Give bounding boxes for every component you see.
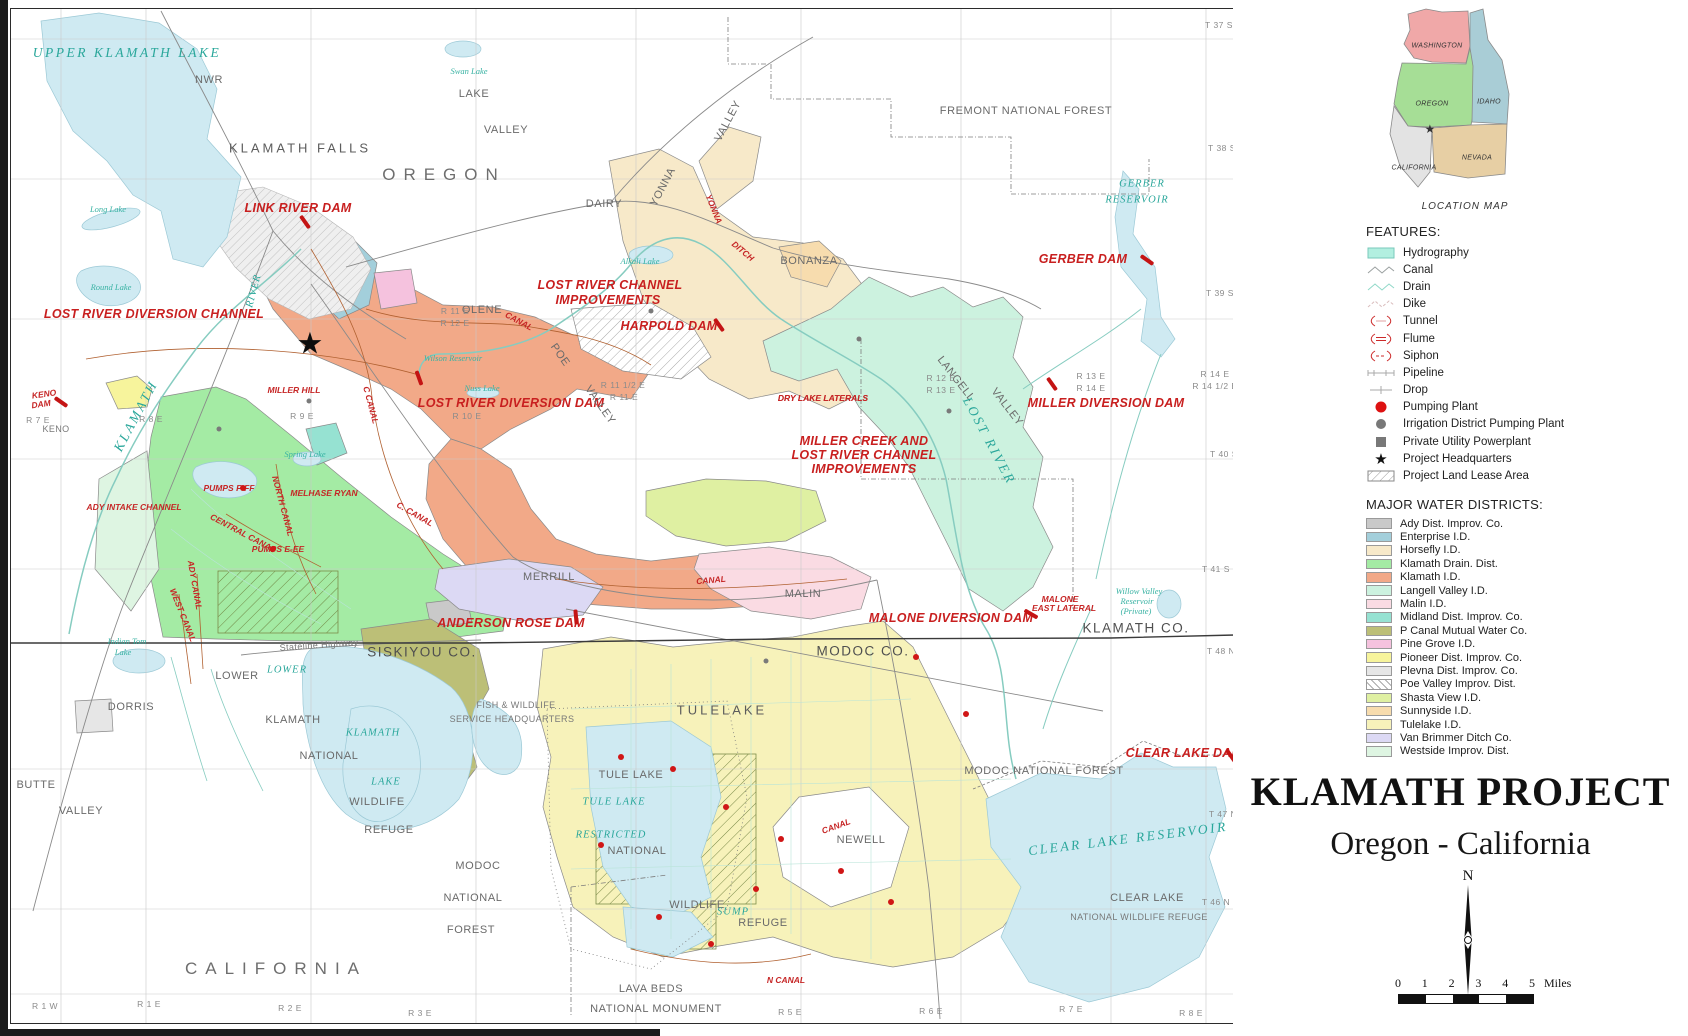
pumping-plant-dot <box>656 914 662 920</box>
map-label: Nuss Lake <box>464 383 499 393</box>
legend-feature-hydrography: Hydrography <box>1366 244 1676 261</box>
map-label: R 11 E <box>610 392 638 402</box>
map-label: NATIONAL MONUMENT <box>590 1003 722 1015</box>
scale-segment <box>1399 995 1426 1003</box>
district-swatch <box>1366 639 1392 650</box>
pumping-plant-dot <box>708 941 714 947</box>
legend-district-pine_grove: Pine Grove I.D. <box>1366 638 1676 651</box>
legend-feature-dike: Dike <box>1366 296 1676 313</box>
pumping-plant-dot <box>270 546 276 552</box>
districts-legend: MAJOR WATER DISTRICTS: Ady Dist. Improv.… <box>1366 497 1676 758</box>
district-pumping-plant-dot <box>857 337 862 342</box>
map-label: R 7 E <box>1059 1004 1083 1014</box>
legend-district-pioneer: Pioneer Dist. Improv. Co. <box>1366 651 1676 664</box>
location-map: WASHINGTONOREGONIDAHOCALIFORNIANEVADA★ <box>1380 6 1550 201</box>
scale-tick: 4 <box>1502 976 1508 991</box>
map-label: FREMONT NATIONAL FOREST <box>940 105 1113 117</box>
legend-district-klamath_drain: Klamath Drain. Dist. <box>1366 557 1676 570</box>
map-label: LOST RIVER CHANNEL <box>538 278 683 292</box>
pumping-plant-dot <box>753 886 759 892</box>
legend-feature-canal: Canal <box>1366 261 1676 278</box>
map-label: CALIFORNIA <box>185 959 367 979</box>
scale-tick: 0 <box>1395 976 1401 991</box>
pumping-plant-dot <box>913 654 919 660</box>
map-label: C. CANAL <box>395 500 435 529</box>
map-label: R 11 E <box>441 306 469 316</box>
pumping-plant-dot <box>778 836 784 842</box>
canal-icon <box>1366 263 1396 277</box>
map-label: REFUGE <box>364 824 413 836</box>
district-swatch <box>1366 626 1392 637</box>
map-label: DITCH <box>730 239 756 263</box>
map-label: MILLER CREEK AND <box>800 434 929 448</box>
map-label: EAST LATERAL <box>1032 603 1096 613</box>
north-label: N <box>1461 868 1475 885</box>
map-label: BUTTE <box>16 779 55 791</box>
map-label: T 41 S <box>1202 564 1230 574</box>
map-label: LINK RIVER DAM <box>245 201 352 215</box>
map-label: Lake <box>115 647 132 657</box>
pumping-plant-dot <box>963 711 969 717</box>
legend-district-westside: Westside Improv. Dist. <box>1366 745 1676 758</box>
map-label: RESERVOIR <box>1105 195 1168 206</box>
legend-district-midland: Midland Dist. Improv. Co. <box>1366 611 1676 624</box>
district-swatch <box>1366 599 1392 610</box>
pipeline-icon <box>1366 366 1396 380</box>
scale-bar-segments <box>1398 994 1534 1004</box>
scale-unit: Miles <box>1544 976 1571 991</box>
map-label: NATIONAL <box>300 750 359 762</box>
map-label: CLEAR LAKE <box>1110 892 1184 904</box>
district-pumping-plant-dot <box>307 399 312 404</box>
map-label: SERVICE HEADQUARTERS <box>450 714 575 724</box>
map-label: (Private) <box>1121 606 1152 616</box>
map-label: LOST RIVER DIVERSION CHANNEL <box>44 307 264 321</box>
dam-mark <box>1140 254 1155 266</box>
map-label: N CANAL <box>767 975 805 985</box>
project-headquarters-star-icon: ★ <box>297 330 324 360</box>
scale-tick: 1 <box>1422 976 1428 991</box>
legend-feature-pumping-plant: Pumping Plant <box>1366 399 1676 416</box>
drop-icon <box>1366 383 1396 397</box>
map-label: Stateline Highway <box>279 637 358 652</box>
map-label: IMPROVEMENTS <box>812 462 917 476</box>
map-label: Indian Tom <box>108 636 147 646</box>
legend-district-van_brimmer: Van Brimmer Ditch Co. <box>1366 731 1676 744</box>
dike-icon <box>1366 297 1396 311</box>
map-label: Wilson Reservoir <box>424 353 482 363</box>
map-label: CLEAR LAKE RESERVOIR <box>1027 819 1228 859</box>
district-swatch <box>1366 746 1392 757</box>
map-canvas[interactable]: UPPER KLAMATH LAKENWRKLAMATH FALLSOREGON… <box>10 8 1236 1024</box>
map-label: SISKIYOU CO. <box>367 645 477 660</box>
district-pumping-plant-dot <box>217 427 222 432</box>
map-label: R 6 E <box>919 1006 943 1016</box>
map-label: R 12 E <box>441 318 470 328</box>
dam-mark <box>54 396 69 408</box>
map-label: KLAMATH <box>346 728 400 739</box>
location-map-caption: LOCATION MAP <box>1380 201 1550 212</box>
map-label: PUMPS F-FF <box>204 483 255 493</box>
map-label: UPPER KLAMATH LAKE <box>33 45 222 61</box>
map-label: R 3 E <box>408 1008 432 1018</box>
map-label: MELHASE RYAN <box>290 488 357 498</box>
legend-district-poe: Poe Valley Improv. Dist. <box>1366 678 1676 691</box>
map-label: R 12 E <box>927 373 956 383</box>
map-label: MILLER HILL <box>268 385 321 395</box>
district-pumping-plant-dot <box>947 409 952 414</box>
pumpG-icon <box>1366 417 1396 431</box>
map-label: LAKE <box>371 777 401 788</box>
map-label: T 46 N <box>1202 897 1230 907</box>
pumping-plant-dot <box>618 754 624 760</box>
map-label: YONNA <box>704 193 725 225</box>
map-label: Spring Lake <box>284 449 325 459</box>
map-label: Long Lake <box>90 204 126 214</box>
district-swatch <box>1366 518 1392 529</box>
map-label: DAM <box>31 398 52 411</box>
legend-district-ady: Ady Dist. Improv. Co. <box>1366 517 1676 530</box>
north-arrow: N <box>1461 868 1475 1000</box>
inset-state-label: CALIFORNIA <box>1391 165 1436 172</box>
pumping-plant-dot <box>240 485 246 491</box>
map-label: TULE LAKE <box>583 797 646 808</box>
dam-mark <box>573 609 578 624</box>
map-labels: UPPER KLAMATH LAKENWRKLAMATH FALLSOREGON… <box>11 9 1235 1023</box>
map-label: CLEAR LAKE DAM <box>1126 746 1236 760</box>
district-swatch <box>1366 545 1392 556</box>
features-heading: FEATURES: <box>1366 224 1676 239</box>
map-label: T 48 N <box>1207 646 1235 656</box>
map-label: NWR <box>195 74 223 86</box>
pumping-plant-dot <box>723 804 729 810</box>
scale-segment <box>1453 995 1480 1003</box>
svg-text:★: ★ <box>1374 452 1387 466</box>
district-swatch <box>1366 666 1392 677</box>
district-swatch <box>1366 652 1392 663</box>
districts-heading: MAJOR WATER DISTRICTS: <box>1366 497 1676 512</box>
pumping-plant-dot <box>838 868 844 874</box>
legend-feature-drain: Drain <box>1366 278 1676 295</box>
map-label: TULE LAKE <box>599 769 664 781</box>
map-label: LAKE <box>459 88 490 100</box>
scan-edge-left <box>0 0 8 1036</box>
map-label: R 8 E <box>139 414 163 424</box>
map-label: DORRIS <box>108 701 154 713</box>
map-label: MILLER DIVERSION DAM <box>1028 396 1185 410</box>
map-label: RIVER <box>244 273 263 309</box>
map-label: DAIRY <box>586 198 622 210</box>
legend-district-shasta: Shasta View I.D. <box>1366 691 1676 704</box>
scan-edge-bottom <box>0 1029 660 1036</box>
map-label: T 37 S <box>1205 20 1233 30</box>
map-label: CANAL <box>504 310 535 333</box>
map-label: NATIONAL <box>444 892 503 904</box>
district-swatch <box>1366 572 1392 583</box>
map-label: R 1 E <box>137 999 161 1009</box>
map-label: LOST RIVER CHANNEL <box>792 448 937 462</box>
map-label: ANDERSON ROSE DAM <box>437 616 584 630</box>
north-arrow-icon <box>1461 885 1475 995</box>
map-label: YONNA <box>648 166 678 209</box>
map-label: R 1 W <box>32 1001 58 1011</box>
map-label: KLAMATH FALLS <box>229 141 371 156</box>
map-title: KLAMATH PROJECT <box>1233 768 1688 815</box>
district-swatch <box>1366 585 1392 596</box>
map-label: WILDLIFE <box>349 796 405 808</box>
legend-district-malin: Malin I.D. <box>1366 597 1676 610</box>
map-label: KENO <box>42 424 69 434</box>
map-label: Reservoir <box>1120 596 1153 606</box>
inset-state-label: OREGON <box>1416 101 1449 108</box>
map-label: T 47 N <box>1209 809 1236 819</box>
map-label: GERBER <box>1119 179 1165 190</box>
inset-state-label: IDAHO <box>1477 99 1501 106</box>
map-label: MODOC CO. <box>817 644 910 659</box>
legend-district-pcanal: P Canal Mutual Water Co. <box>1366 624 1676 637</box>
map-label: POE <box>548 341 572 368</box>
map-label: LAVA BEDS <box>619 983 683 995</box>
legend-panel: WASHINGTONOREGONIDAHOCALIFORNIANEVADA★ L… <box>1233 0 1688 1036</box>
map-label: CANAL <box>820 816 851 836</box>
flume-icon <box>1366 332 1396 346</box>
map-label: T 39 S <box>1206 288 1234 298</box>
map-label: Swan Lake <box>450 66 487 76</box>
legend-district-sunnyside: Sunnyside I.D. <box>1366 704 1676 717</box>
district-swatch <box>1366 612 1392 623</box>
map-label: R 10 E <box>453 411 482 421</box>
map-label: LOST RIVER DIVERSION DAM <box>418 396 604 410</box>
drain-icon <box>1366 280 1396 294</box>
scale-tick: 2 <box>1449 976 1455 991</box>
map-label: R 14 1/2 E <box>1192 381 1236 391</box>
scale-tick: 3 <box>1475 976 1481 991</box>
scale-segment <box>1479 995 1506 1003</box>
map-label: VALLEY <box>59 805 103 817</box>
map-label: CANAL <box>696 574 727 587</box>
legend-feature-tunnel: Tunnel <box>1366 313 1676 330</box>
dam-mark <box>415 370 424 385</box>
map-label: R 13 E <box>927 385 956 395</box>
legend-district-klamath_id: Klamath I.D. <box>1366 571 1676 584</box>
inset-project-star-icon: ★ <box>1424 122 1435 136</box>
district-swatch <box>1366 733 1392 744</box>
map-label: R 7 E <box>26 415 50 425</box>
map-label: Willow Valley <box>1116 586 1163 596</box>
map-label: R 5 E <box>778 1007 802 1017</box>
lease-icon <box>1366 469 1396 483</box>
legend-district-langell: Langell Valley I.D. <box>1366 584 1676 597</box>
district-swatch <box>1366 693 1392 704</box>
map-label: NATIONAL <box>608 845 667 857</box>
scale-tick: 5 <box>1529 976 1535 991</box>
inset-state-label: WASHINGTON <box>1412 43 1463 50</box>
legend-district-tulelake: Tulelake I.D. <box>1366 718 1676 731</box>
map-label: OREGON <box>382 165 506 185</box>
map-label: NATIONAL WILDLIFE REFUGE <box>1070 912 1208 922</box>
map-label: REFUGE <box>738 917 787 929</box>
scale-segment <box>1506 995 1533 1003</box>
pumping-plant-dot <box>670 766 676 772</box>
legend-district-enterprise: Enterprise I.D. <box>1366 530 1676 543</box>
map-label: R 2 E <box>278 1003 302 1013</box>
map-label: KLAMATH <box>265 714 320 726</box>
star-icon: ★ <box>1366 452 1396 466</box>
map-label: VALLEY <box>484 124 528 136</box>
map-label: MERRILL <box>523 571 575 583</box>
district-pumping-plant-dot <box>649 309 654 314</box>
district-swatch <box>1366 719 1392 730</box>
map-label: DRY LAKE LATERALS <box>778 393 868 403</box>
scale-segment <box>1426 995 1453 1003</box>
map-label: FOREST <box>447 924 495 936</box>
map-label: LOWER <box>267 665 307 676</box>
pp-icon <box>1366 435 1396 449</box>
page: UPPER KLAMATH LAKENWRKLAMATH FALLSOREGON… <box>0 0 1688 1036</box>
legend-feature-project-headquarters: ★Project Headquarters <box>1366 450 1676 467</box>
map-label: R 9 E <box>290 411 314 421</box>
map-label: R 14 E <box>1201 369 1230 379</box>
district-swatch <box>1366 559 1392 570</box>
map-label: SUMP <box>717 907 749 918</box>
map-label: NORTH CANAL <box>270 475 296 538</box>
map-label: BONANZA <box>780 255 837 267</box>
map-label: TULELAKE <box>677 703 767 718</box>
map-label: GERBER DAM <box>1039 252 1127 266</box>
legend-feature-flume: Flume <box>1366 330 1676 347</box>
location-map-graphic <box>1380 6 1550 201</box>
legend-feature-siphon: Siphon <box>1366 347 1676 364</box>
features-legend: FEATURES: HydrographyCanalDrainDikeTunne… <box>1366 224 1676 485</box>
map-label: IMPROVEMENTS <box>556 293 661 307</box>
pumping-plant-dot <box>598 842 604 848</box>
map-label: MODOC <box>455 860 500 872</box>
legend-district-plevna: Plevna Dist. Improv. Co. <box>1366 664 1676 677</box>
map-label: CENTRAL CANAL <box>209 512 278 555</box>
map-label: ADY CANAL <box>186 560 205 611</box>
map-label: Alkali Lake <box>621 256 660 266</box>
pumpR-icon <box>1366 400 1396 414</box>
map-label: ADY INTAKE CHANNEL <box>86 502 181 512</box>
map-label: VALLEY <box>989 386 1026 428</box>
map-label: MALIN <box>785 588 822 600</box>
map-label: R 13 E <box>1077 371 1106 381</box>
map-label: VALLEY <box>712 99 743 144</box>
map-label: LOWER <box>215 670 258 682</box>
district-swatch <box>1366 532 1392 543</box>
legend-feature-private-utility-powerplant: Private Utility Powerplant <box>1366 433 1676 450</box>
map-label: KLAMATH CO. <box>1082 621 1189 636</box>
legend-district-horsefly: Horsefly I.D. <box>1366 544 1676 557</box>
district-pumping-plant-dot <box>764 659 769 664</box>
map-label: R 14 E <box>1077 383 1106 393</box>
map-label: Round Lake <box>91 282 132 292</box>
hyd-icon <box>1366 246 1396 260</box>
pumping-plant-dot <box>888 899 894 905</box>
map-label: NEWELL <box>837 834 886 846</box>
inset-state-label: NEVADA <box>1462 155 1492 162</box>
siphon-icon <box>1366 349 1396 363</box>
dam-mark <box>1046 377 1058 392</box>
legend-feature-pipeline: Pipeline <box>1366 364 1676 381</box>
district-swatch <box>1366 679 1392 690</box>
map-label: T 38 S <box>1208 143 1236 153</box>
legend-feature-drop: Drop <box>1366 382 1676 399</box>
map-label: C CANAL <box>361 385 381 425</box>
map-label: RESTRICTED <box>576 830 647 841</box>
map-label: MALONE DIVERSION DAM <box>869 611 1033 625</box>
map-label: R 11 1/2 E <box>601 380 646 390</box>
dam-mark <box>299 215 311 230</box>
map-subtitle: Oregon - California <box>1233 826 1688 863</box>
map-label: R 8 E <box>1179 1008 1203 1018</box>
legend-feature-irrigation-district-pumping-plant: Irrigation District Pumping Plant <box>1366 416 1676 433</box>
map-label: FISH & WILDLIFE <box>476 700 555 710</box>
legend-feature-project-land-lease-area: Project Land Lease Area <box>1366 467 1676 484</box>
map-label: HARPOLD DAM <box>620 319 717 333</box>
tunnel-icon <box>1366 314 1396 328</box>
district-swatch <box>1366 706 1392 717</box>
map-label: MODOC NATIONAL FOREST <box>964 765 1123 777</box>
